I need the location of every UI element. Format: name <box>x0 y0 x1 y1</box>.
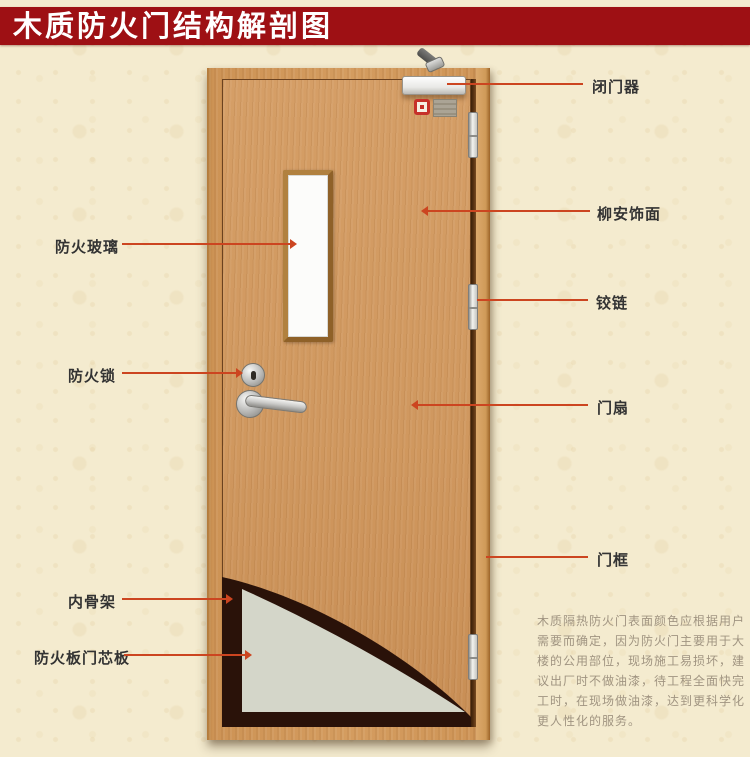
callout-line-door-frame <box>486 556 588 558</box>
callout-line-veneer <box>428 210 590 212</box>
callout-label-core-board: 防火板门芯板 <box>34 647 130 668</box>
callout-line-core-board <box>124 654 245 656</box>
hinge-middle-icon <box>468 284 478 330</box>
door-closer-icon <box>402 76 466 95</box>
fireproof-glass-window <box>283 170 333 342</box>
callout-label-inner-skeleton: 内骨架 <box>68 591 116 612</box>
core-board-region <box>242 589 465 712</box>
arrow-icon <box>236 368 243 378</box>
fire-rating-sign-icon <box>414 99 430 115</box>
description-line: 需要而确定，因为防火门主要用于大 <box>537 631 747 651</box>
callout-line-inner-skeleton <box>122 598 226 600</box>
description-line: 木质隔热防火门表面颜色应根据用户 <box>537 611 747 631</box>
arrow-icon <box>245 650 252 660</box>
callout-label-hinge: 铰链 <box>596 292 628 313</box>
callout-label-fire-lock: 防火锁 <box>68 365 116 386</box>
callout-label-veneer: 柳安饰面 <box>597 203 661 224</box>
description-line: 楼的公用部位，现场施工易损坏，建 <box>537 651 747 671</box>
arrow-icon <box>411 400 418 410</box>
lock-cylinder-icon <box>241 363 265 387</box>
description-text: 木质隔热防火门表面颜色应根据用户 需要而确定，因为防火门主要用于大 楼的公用部位… <box>537 611 747 731</box>
page-title: 木质防火门结构解剖图 <box>0 7 750 44</box>
callout-line-door-closer <box>447 83 583 85</box>
door-frame-gap <box>471 79 476 727</box>
hinge-top-icon <box>468 112 478 158</box>
callout-label-door-frame: 门框 <box>597 549 629 570</box>
nameplate-icon <box>433 99 457 117</box>
title-banner: 木质防火门结构解剖图 <box>0 7 750 45</box>
arrow-icon <box>226 594 233 604</box>
callout-line-hinge <box>477 299 588 301</box>
description-line: 工时，在现场做油漆，达到更科学化 <box>537 691 747 711</box>
callout-label-fireproof-glass: 防火玻璃 <box>55 236 119 257</box>
callout-label-door-closer: 闭门器 <box>592 76 640 97</box>
callout-label-door-leaf: 门扇 <box>597 397 629 418</box>
callout-line-door-leaf <box>418 404 588 406</box>
arrow-icon <box>290 239 297 249</box>
arrow-icon <box>421 206 428 216</box>
cutaway-section <box>222 575 471 727</box>
callout-line-fire-lock <box>122 372 236 374</box>
description-line: 更人性化的服务。 <box>537 711 747 731</box>
callout-line-fireproof-glass <box>122 243 290 245</box>
description-line: 议出厂时不做油漆，待工程全面快完 <box>537 671 747 691</box>
